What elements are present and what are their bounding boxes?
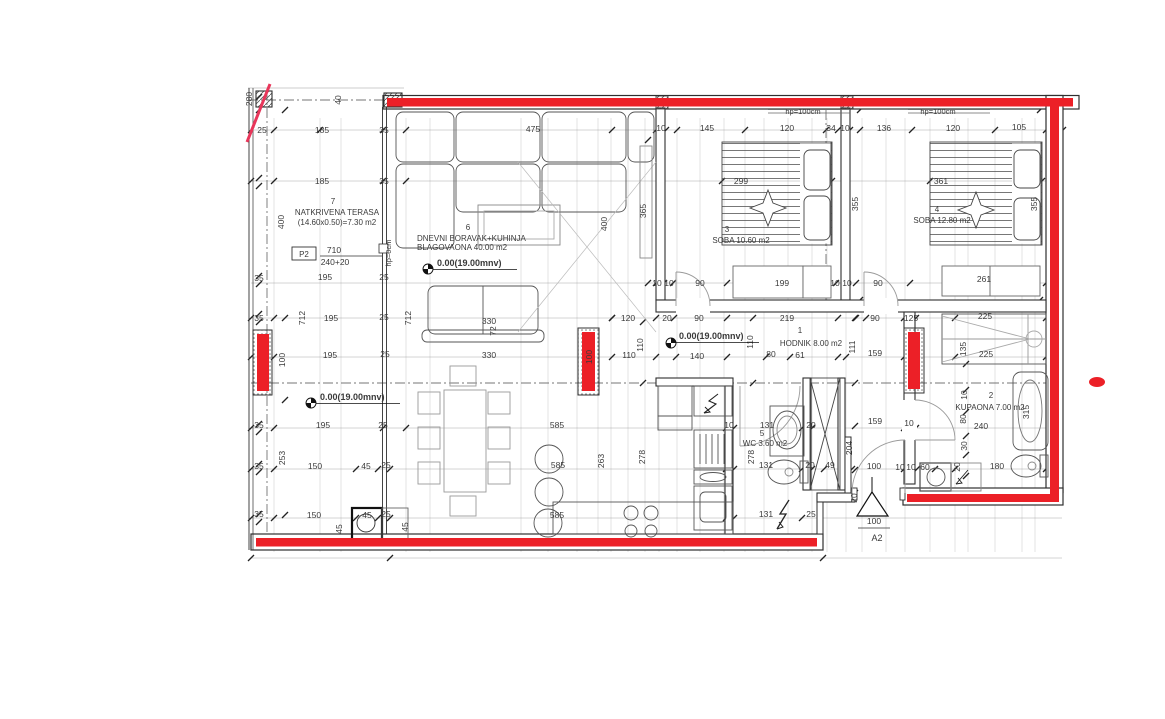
dim-label: 195 — [316, 420, 330, 430]
dim-label: 10 — [840, 123, 850, 133]
dim-label: 199 — [775, 278, 789, 288]
elevation-marker-quadrant — [671, 338, 676, 343]
elevation-label: 0.00(19.00mnv) — [320, 392, 385, 402]
dim-label: 10 — [724, 420, 734, 430]
hood-arrow-icon — [704, 394, 718, 413]
dim-label: 400 — [599, 217, 609, 231]
dim-label: 10 — [652, 278, 662, 288]
room-label: DNEVNI BORAVAK+KUHINJA — [417, 234, 527, 243]
dim-label: 585 — [550, 420, 564, 430]
parapet-label: hp=100cm — [785, 107, 820, 116]
dim-label: 110 — [622, 350, 636, 360]
elevation-label: 0.00(19.00mnv) — [679, 331, 744, 341]
dining-chair — [418, 462, 440, 484]
dim-label: 180 — [990, 461, 1004, 471]
red-dot-marker — [1089, 377, 1105, 387]
dim-label: 30 — [959, 441, 969, 451]
dim-label: 40 — [333, 95, 343, 105]
dim-tick — [645, 137, 651, 143]
kitchen-sink — [700, 492, 726, 522]
dim-label: 25 — [806, 509, 816, 519]
dim-label: 253 — [277, 451, 287, 465]
dim-label: 225 — [979, 349, 993, 359]
dim-label: 585 — [551, 460, 565, 470]
dim-tick — [282, 107, 288, 113]
wall-kitchen-north — [656, 378, 733, 386]
room-label: WC 3.60 m2 — [743, 439, 788, 448]
dim-label: 330 — [482, 316, 496, 326]
dim-label: 35 — [254, 420, 264, 430]
dim-label: 145 — [700, 123, 714, 133]
dim-label: 135 — [958, 342, 968, 356]
dining-set — [418, 366, 510, 516]
dim-label: 330 — [482, 350, 496, 360]
room-label: SOBA 10.60 m2 — [712, 236, 770, 245]
dim-label: 35 — [254, 313, 264, 323]
elevation-label: 0.00(19.00mnv) — [437, 258, 502, 268]
room-number: 6 — [466, 223, 471, 232]
sofa-cushion — [396, 112, 454, 162]
dim-label: 365 — [638, 204, 648, 218]
pillow — [804, 196, 830, 240]
dim-label: 120 — [780, 123, 794, 133]
parapet-label: hp=0cm — [384, 240, 393, 267]
room-number: 1 — [798, 326, 803, 335]
dim-label: 90 — [873, 278, 883, 288]
dim-label: 25 — [379, 312, 389, 322]
dim-label: 35 — [254, 461, 264, 471]
dim-label: 25 — [379, 272, 389, 282]
floorplan-drawing: 2518535475101451203410136120105185352993… — [0, 0, 1165, 719]
dim-label: 280 — [244, 92, 254, 106]
dim-label: 45 — [361, 461, 371, 471]
dim-label: 400 — [276, 215, 286, 229]
dim-label: 185 — [315, 125, 329, 135]
parapet-label: hp=100cm — [920, 107, 955, 116]
dim-label: 110 — [745, 335, 755, 349]
dim-label: 261 — [977, 274, 991, 284]
dim-label: 140 — [690, 351, 704, 361]
floor-label-code: P2 — [299, 250, 309, 259]
room-label: HODNIK 8.00 m2 — [780, 339, 843, 348]
elevation-marker-quadrant — [428, 264, 433, 269]
dim-label: 263 — [596, 454, 606, 468]
section-label: A2 — [871, 533, 882, 543]
elevation-marker-quadrant — [423, 269, 428, 274]
dim-label: 125 — [904, 313, 918, 323]
sofa-small — [422, 286, 544, 342]
dim-label: 712 — [297, 311, 307, 325]
pillow — [804, 150, 830, 190]
dim-label: 34 — [826, 123, 836, 133]
dim-label: 111 — [847, 340, 857, 353]
red-wall-right — [1050, 99, 1059, 502]
elevation-marker-quadrant — [311, 398, 316, 403]
pillow — [1014, 150, 1040, 188]
room-label: BLAGOVAONA 40.00 m2 — [417, 243, 508, 252]
dresser — [733, 266, 803, 298]
dim-label: 35 — [254, 273, 264, 283]
room-label: SOBA 12.80 m2 — [913, 216, 971, 225]
dim-tick — [256, 519, 262, 525]
dim-label: 240 — [974, 421, 988, 431]
dim-label: 110 — [635, 338, 645, 352]
dim-label: 150 — [307, 510, 321, 520]
dim-label: 80 — [958, 414, 968, 424]
dim-label: 10 — [664, 278, 674, 288]
door-arc-bathroom — [915, 400, 955, 440]
kitchen-cabinet — [658, 386, 692, 416]
dim-tick — [282, 397, 288, 403]
dim-label: 355 — [850, 197, 860, 211]
door-opening-bedroom4 — [864, 298, 898, 314]
dim-label: 45 — [400, 522, 410, 532]
electrical-bolt-icon — [777, 500, 789, 529]
dim-label: 355 — [1029, 197, 1039, 211]
floor-label-top: 710 — [327, 245, 341, 255]
room-number: 5 — [760, 429, 765, 438]
dim-label: 45 — [334, 524, 344, 534]
door-opening-bedroom3 — [676, 298, 710, 314]
dim-label: 90 — [870, 313, 880, 323]
dim-label: 25 — [381, 509, 391, 519]
dim-label: 299 — [734, 176, 748, 186]
dim-label: 90 — [694, 313, 704, 323]
dining-chair — [488, 462, 510, 484]
dim-label: 20 — [952, 462, 962, 472]
dim-label: 20 — [805, 460, 815, 470]
sofa-cushion — [456, 112, 540, 162]
red-column-right — [908, 332, 920, 389]
dining-chair — [418, 427, 440, 449]
dim-label: 475 — [526, 124, 540, 134]
dim-label: 72 — [488, 326, 498, 336]
dim-label: 585 — [550, 510, 564, 520]
elevation-marker-quadrant — [306, 403, 311, 408]
dim-label: 120 — [946, 123, 960, 133]
entrance-frame-right — [900, 488, 905, 500]
bedroom3-furniture — [722, 142, 832, 298]
red-wall-bottom-right — [907, 494, 1057, 502]
dim-label: 278 — [637, 450, 647, 464]
room-number: 3 — [725, 225, 730, 234]
dim-label: 49 — [825, 460, 835, 470]
sofa-cushion — [542, 112, 626, 162]
dim-label: 35 — [379, 125, 389, 135]
room-number: 4 — [935, 205, 940, 214]
dim-label: 219 — [780, 313, 794, 323]
dim-label: 10 — [904, 418, 914, 428]
dim-label: 35 — [379, 176, 389, 186]
red-column-left — [257, 334, 269, 391]
red-wall-bottom — [256, 538, 817, 547]
dim-tick — [256, 175, 262, 181]
dim-label: 25 — [381, 460, 391, 470]
dim-label: 25 — [378, 420, 388, 430]
dim-label: 159 — [868, 348, 882, 358]
dim-label: 150 — [308, 461, 322, 471]
dim-label: 195 — [318, 272, 332, 282]
dim-label: 204 — [844, 441, 854, 455]
wall-bedroom3-bedroom4 — [841, 108, 850, 300]
dim-label: 100 — [277, 353, 287, 367]
room-label: KUPAONA 7.00 m2 — [955, 403, 1025, 412]
section-dim: 100 — [867, 516, 881, 526]
kitchen-tray — [700, 473, 726, 482]
floor-label-bottom: 240+20 — [321, 257, 350, 267]
dim-label: 136 — [877, 123, 891, 133]
dim-label: 60 — [920, 462, 930, 472]
dim-label: 195 — [324, 313, 338, 323]
wall-living-bedroom3 — [656, 108, 665, 300]
dim-label: 131 — [759, 460, 773, 470]
nightstand — [803, 266, 831, 298]
dim-label: 90 — [695, 278, 705, 288]
floorplan-canvas: 2518535475101451203410136120105185352993… — [0, 0, 1165, 719]
dim-label: 10 — [895, 462, 905, 472]
wall-shaft-east — [838, 378, 845, 490]
dim-label: 10 — [959, 390, 969, 400]
dim-label: 120 — [621, 313, 635, 323]
tv-panel — [640, 146, 652, 258]
dim-label: 20 — [849, 493, 859, 503]
dim-label: 712 — [403, 311, 413, 325]
shaft — [810, 378, 840, 490]
dim-label: 61 — [795, 350, 805, 360]
elevation-marker-quadrant — [666, 343, 671, 348]
dim-label: 185 — [315, 176, 329, 186]
dim-label: 278 — [746, 450, 756, 464]
dim-label: 35 — [254, 509, 264, 519]
dim-label: 225 — [978, 311, 992, 321]
dim-label: 10 — [842, 278, 852, 288]
section-triangle-icon — [857, 492, 888, 516]
dim-label: 80 — [766, 349, 776, 359]
red-wall-top — [387, 98, 1073, 107]
dim-label: 45 — [362, 510, 372, 520]
dim-label: 195 — [323, 350, 337, 360]
dining-chair — [488, 427, 510, 449]
dim-label: 10 — [830, 278, 840, 288]
room-number: 7 — [331, 197, 336, 206]
dining-chair — [488, 392, 510, 414]
dining-table — [444, 390, 486, 492]
dim-label: 10 — [656, 123, 666, 133]
dim-label: 131 — [759, 509, 773, 519]
dim-label: 10 — [906, 462, 916, 472]
wall-entry-step-side — [817, 502, 823, 534]
dim-label: 361 — [934, 176, 948, 186]
room-label: NATKRIVENA TERASA — [295, 208, 380, 217]
dim-label: 105 — [1012, 122, 1026, 132]
room-number: 2 — [989, 391, 994, 400]
wc-vanity — [770, 406, 804, 456]
dining-chair — [450, 496, 476, 516]
room-label: (14.60x0.50)=7.30 m2 — [298, 218, 377, 227]
dim-label: 159 — [868, 416, 882, 426]
dining-chair — [418, 392, 440, 414]
bath-toilet-bowl — [1011, 455, 1041, 477]
dim-label: 25 — [257, 125, 267, 135]
dim-tick — [282, 512, 288, 518]
dim-tick — [256, 183, 262, 189]
dim-label: 25 — [380, 349, 390, 359]
dim-label: 20 — [806, 420, 816, 430]
dim-label: 20 — [662, 313, 672, 323]
dim-label: 100 — [867, 461, 881, 471]
dim-label: 100 — [584, 350, 594, 364]
